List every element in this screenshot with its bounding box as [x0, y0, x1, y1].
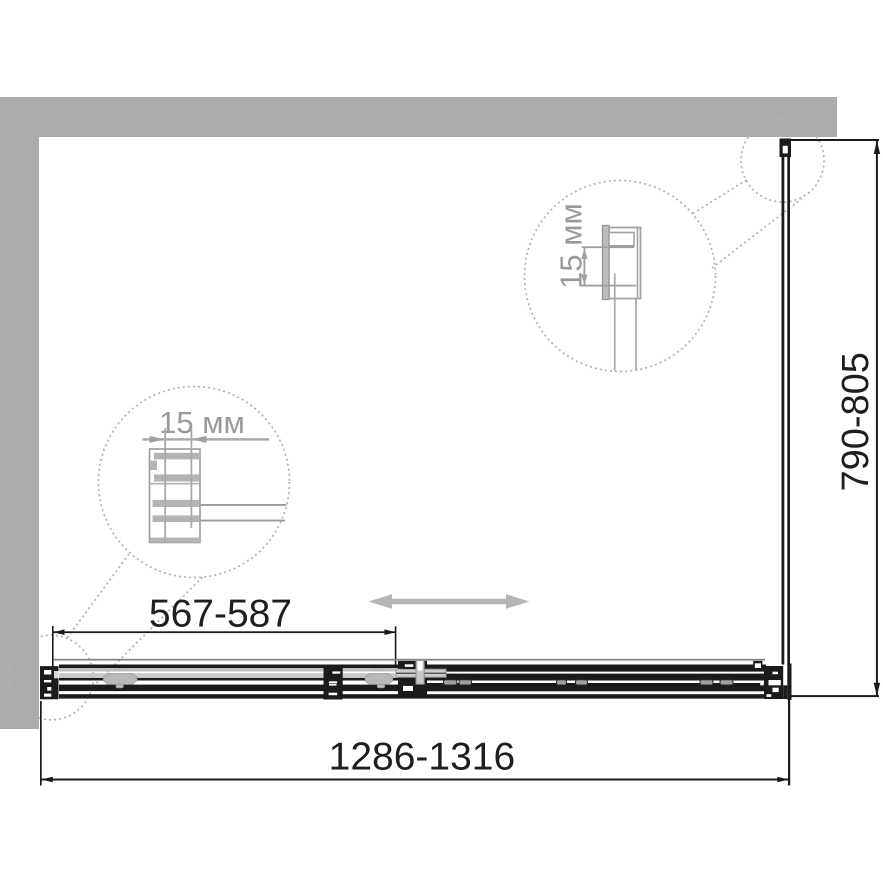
svg-text:567-587: 567-587 [149, 592, 292, 635]
svg-text:790-805: 790-805 [835, 352, 877, 491]
svg-text:1286-1316: 1286-1316 [329, 736, 516, 779]
svg-text:15 мм: 15 мм [159, 405, 245, 440]
